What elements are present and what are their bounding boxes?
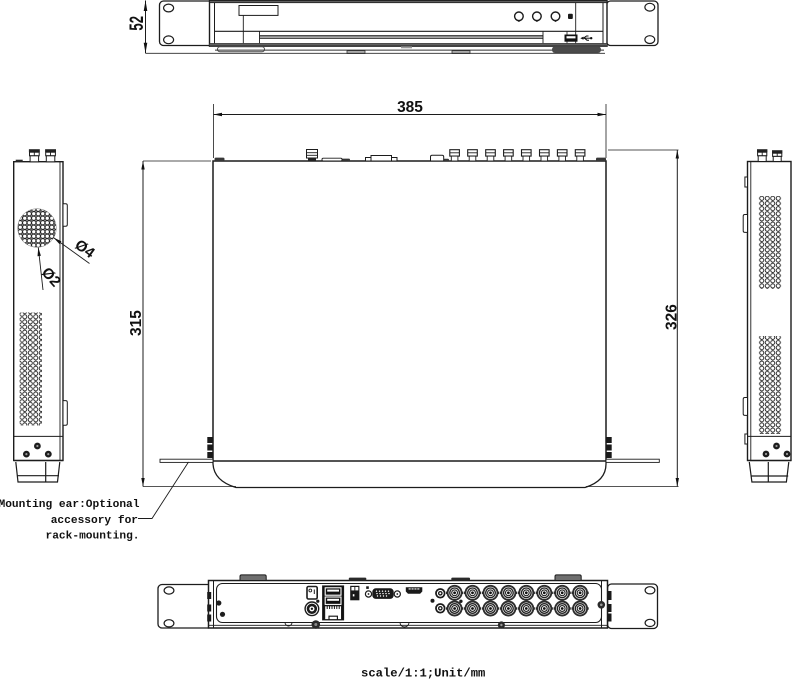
svg-text:52: 52	[125, 16, 147, 31]
svg-text:385: 385	[397, 99, 423, 116]
svg-text:rack-mounting.: rack-mounting.	[46, 531, 140, 543]
svg-text:Ø4: Ø4	[72, 236, 99, 262]
svg-text:scale/1:1;Unit/mm: scale/1:1;Unit/mm	[361, 667, 485, 681]
svg-text:accessory for: accessory for	[51, 515, 138, 527]
svg-text:326: 326	[664, 304, 681, 330]
svg-text:315: 315	[128, 310, 145, 336]
svg-text:Mounting ear:Optional: Mounting ear:Optional	[0, 499, 140, 511]
